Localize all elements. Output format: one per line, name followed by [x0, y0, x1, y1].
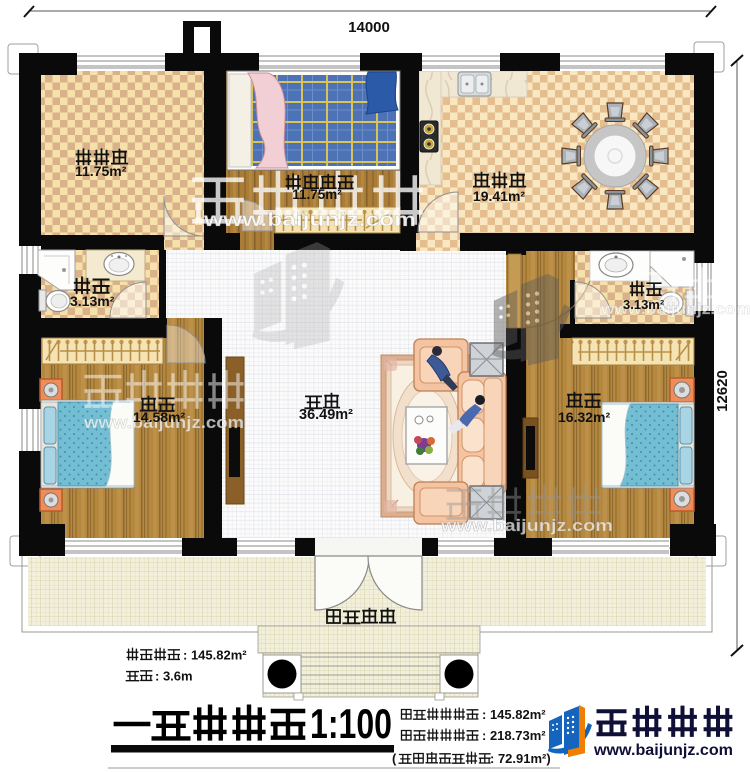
- svg-text:3.13m²: 3.13m²: [70, 293, 115, 309]
- svg-text:: 145.82m²: : 145.82m²: [482, 707, 546, 722]
- svg-text:www.baijunjz.com: www.baijunjz.com: [203, 210, 416, 231]
- svg-text:14000: 14000: [348, 19, 390, 36]
- svg-text:36.49m²: 36.49m²: [299, 407, 353, 423]
- svg-text:19.41m²: 19.41m²: [473, 188, 525, 204]
- svg-text:14.58m²: 14.58m²: [133, 409, 185, 425]
- svg-text:: 3.6m: : 3.6m: [155, 669, 193, 684]
- svg-text:: 218.73m²: : 218.73m²: [482, 728, 546, 743]
- svg-text:1:100: 1:100: [310, 700, 392, 747]
- svg-text:www.baijunjz.com: www.baijunjz.com: [593, 742, 733, 759]
- svg-text:11.75m²: 11.75m²: [75, 163, 127, 179]
- svg-text:www.baijunjz.com: www.baijunjz.com: [440, 516, 613, 535]
- svg-text:: 145.82m²: : 145.82m²: [183, 648, 247, 663]
- svg-text:12620: 12620: [714, 370, 731, 412]
- svg-text:3.13m²: 3.13m²: [623, 297, 665, 312]
- svg-text:11.75m²: 11.75m²: [292, 187, 342, 202]
- svg-text:: 72.91m²): : 72.91m²): [490, 751, 551, 766]
- svg-text:16.32m²: 16.32m²: [558, 409, 610, 425]
- svg-text:(: (: [392, 751, 397, 766]
